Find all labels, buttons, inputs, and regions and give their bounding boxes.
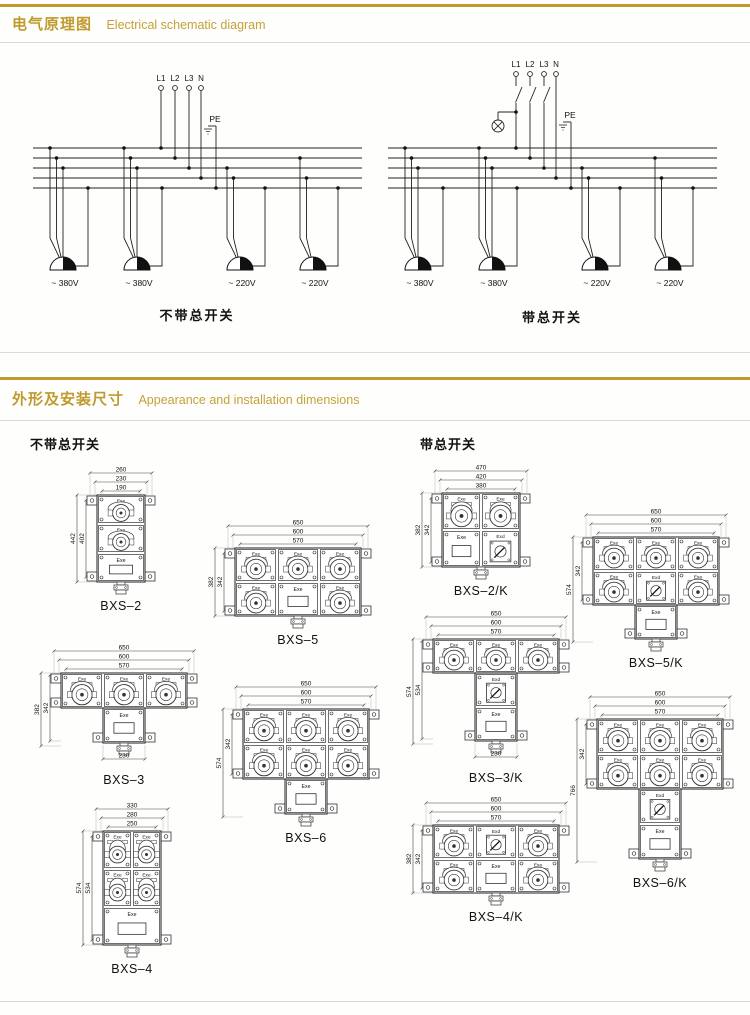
model-label: BXS–3/K (469, 771, 523, 785)
module-marking: Exe (142, 835, 151, 841)
module-marking: Exe (120, 713, 129, 719)
schematic-without-main-switch: L1L2L3NPE~ 380V~ 380V~ 220V~ 220V不带总开关 (25, 70, 370, 326)
dimension-value: 402 (79, 533, 86, 544)
dimension-value: 342 (579, 748, 586, 759)
dimension-value: 534 (85, 882, 92, 893)
unit-drawing-bxs6k: 650600570766342ExeExeExeExeExeExeExdExeB… (560, 684, 738, 890)
dimension-value: 570 (491, 629, 502, 636)
module-marking: Exe (113, 873, 122, 879)
module-marking: Exd (496, 534, 505, 540)
dimension-value: 650 (119, 645, 130, 652)
unit-drawing-bxs5k: 650600570574342ExeExeExeExeExdExeExeBXS–… (556, 502, 734, 670)
terminal-circle (159, 86, 164, 91)
unit-drawing-bxs-6: 650600570574342ExeExeExeExeExeExeExeBXS–… (206, 674, 384, 850)
unit-drawing-bxs2k: 470420380382342ExeExeExeExdBXS–2/K (405, 458, 535, 598)
dimension-value: 570 (301, 699, 312, 706)
unit-drawing-bxs4k: 650600570382342ExeExdExeExeExeExeBXS–4/K (396, 790, 574, 924)
module-marking: Exe (117, 558, 126, 564)
dimension-value: 342 (225, 738, 232, 749)
model-label: BXS–6 (285, 831, 326, 845)
socket-symbol (582, 257, 608, 270)
svg-text:N: N (198, 74, 204, 83)
dimension-value: 382 (415, 524, 422, 535)
outlet-voltage-label: ~ 220V (301, 278, 329, 288)
svg-text:L2: L2 (171, 74, 180, 83)
outlet-voltage-label: ~ 380V (480, 278, 508, 288)
dimension-value: 342 (43, 702, 50, 713)
module-marking: Exe (492, 864, 501, 870)
dimension-value: 600 (651, 518, 662, 525)
dimension-value: 382 (406, 853, 413, 864)
dimension-value: 382 (208, 576, 215, 587)
socket-symbol (479, 257, 505, 270)
divider-between-sections (0, 352, 750, 353)
gold-rule-dimensions (0, 377, 750, 380)
svg-text:L1: L1 (512, 60, 521, 69)
dimension-value: 600 (293, 529, 304, 536)
socket-symbol (655, 257, 681, 270)
module-marking: Exe (457, 535, 466, 541)
dimension-value: 342 (415, 853, 422, 864)
dimension-value: 650 (293, 520, 304, 527)
section-header-dimensions: 外形及安装尺寸 Appearance and installation dime… (12, 388, 359, 409)
model-label: BXS–2/K (454, 584, 508, 598)
model-label: BXS–4 (111, 962, 152, 976)
unit-drawing-bxs-4k: 650600570382342ExeExdExeExeExeExeBXS–4/K (396, 790, 574, 929)
terminal-circle (199, 86, 204, 91)
dimension-value: 574 (406, 686, 413, 697)
dimension-value: 230 (119, 753, 130, 760)
module-marking: Exd (656, 793, 665, 799)
schematic-with-main-switch: L1L2L3NPE~ 380V~ 380V~ 220V~ 220V带总开关 (380, 56, 725, 328)
schematic-diagram-without-main-switch: L1L2L3NPE~ 380V~ 380V~ 220V~ 220V不带总开关 (25, 70, 370, 331)
dimension-value: 570 (651, 527, 662, 534)
module-marking: Exd (652, 575, 661, 581)
terminal-circle (173, 86, 178, 91)
terminal-circle (514, 72, 519, 77)
socket-symbol (405, 257, 431, 270)
dimension-value: 570 (655, 709, 666, 716)
section-header-schematic: 电气原理图 Electrical schematic diagram (12, 13, 266, 34)
module-marking: Exe (656, 829, 665, 835)
unit-drawing-bxs-2k: 470420380382342ExeExeExeExdBXS–2/K (405, 458, 535, 603)
dimension-value: 600 (119, 654, 130, 661)
socket-symbol (124, 257, 150, 270)
unit-drawing-bxs5: 650600570382342ExeExeExeExeExeExeBXS–5 (198, 513, 376, 647)
dimension-value: 260 (116, 467, 127, 474)
page-bottom-rule (0, 1001, 750, 1002)
svg-text:L3: L3 (540, 60, 549, 69)
column-header-with-main-switch: 带总开关 (420, 434, 476, 453)
dimension-value: 380 (476, 483, 487, 490)
dimension-value: 342 (575, 565, 582, 576)
dimension-value: 420 (476, 474, 487, 481)
schematic-title-zh: 电气原理图 (12, 16, 92, 33)
dimension-value: 230 (116, 476, 127, 483)
model-label: BXS–2 (100, 599, 141, 613)
pe-label: PE (209, 114, 221, 124)
dimension-value: 650 (301, 681, 312, 688)
outlet-voltage-label: ~ 220V (228, 278, 256, 288)
dimension-value: 382 (34, 704, 41, 715)
model-label: BXS–4/K (469, 910, 523, 924)
module-marking: Exd (492, 677, 501, 683)
module-marking: Exe (492, 712, 501, 718)
pe-label: PE (564, 110, 576, 120)
unit-drawing-bxs-3k: 650600570574534ExeExeExeExdExe230BXS–3/K (396, 604, 574, 790)
unit-drawing-bxs6: 650600570574342ExeExeExeExeExeExeExeBXS–… (206, 674, 384, 845)
unit-drawing-bxs3: 650600570382342ExeExeExeExe230BXS–3 (24, 638, 202, 787)
dimension-value: 574 (216, 757, 223, 768)
outlet-voltage-label: ~ 220V (656, 278, 684, 288)
dimension-value: 250 (127, 821, 138, 828)
dimension-value: 470 (476, 465, 487, 472)
dimension-value: 574 (76, 882, 83, 893)
outlet-voltage-label: ~ 380V (406, 278, 434, 288)
dimension-value: 570 (293, 538, 304, 545)
terminal-circle (554, 72, 559, 77)
socket-symbol (300, 257, 326, 270)
divider-under-dimensions-header (0, 420, 750, 421)
model-label: BXS–5/K (629, 656, 683, 670)
socket-symbol (50, 257, 76, 270)
socket-symbol (227, 257, 253, 270)
unit-drawing-bxs-6k: 650600570766342ExeExeExeExeExeExeExdExeB… (560, 684, 738, 895)
model-label: BXS–3 (103, 773, 144, 787)
unit-drawing-bxs-4: 330280250574534ExeExeExeExeExeBXS–4 (66, 796, 176, 981)
dimension-value: 600 (301, 690, 312, 697)
outlet-voltage-label: ~ 380V (125, 278, 153, 288)
dimension-value: 230 (491, 751, 502, 758)
outlet-voltage-label: ~ 220V (583, 278, 611, 288)
unit-drawing-bxs-2: 260230190442402ExeExeExeBXS–2 (60, 460, 160, 618)
dimension-value: 570 (491, 815, 502, 822)
dimensions-title-en: Appearance and installation dimensions (138, 393, 359, 407)
module-marking: Exd (492, 829, 501, 835)
model-label: BXS–5 (277, 633, 318, 647)
dimension-value: 650 (655, 691, 666, 698)
dimension-value: 442 (70, 533, 77, 544)
schematic-diagram-with-main-switch: L1L2L3NPE~ 380V~ 380V~ 220V~ 220V带总开关 (380, 56, 725, 333)
terminal-circle (542, 72, 547, 77)
svg-text:N: N (553, 60, 559, 69)
module-marking: Exe (294, 587, 303, 593)
dimension-value: 190 (116, 485, 127, 492)
dimension-value: 650 (491, 611, 502, 618)
dimension-value: 650 (651, 509, 662, 516)
dimensions-title-zh: 外形及安装尺寸 (12, 391, 124, 408)
schematic-title-en: Electrical schematic diagram (106, 18, 265, 32)
unit-drawing-bxs-5k: 650600570574342ExeExeExeExeExdExeExeBXS–… (556, 502, 734, 675)
unit-drawing-bxs2: 260230190442402ExeExeExeBXS–2 (60, 460, 160, 613)
gold-rule-top (0, 4, 750, 7)
terminal-circle (528, 72, 533, 77)
outlet-voltage-label: ~ 380V (51, 278, 79, 288)
terminal-circle (187, 86, 192, 91)
dimension-value: 342 (424, 524, 431, 535)
dimension-value: 600 (491, 806, 502, 813)
dimension-value: 650 (491, 797, 502, 804)
module-marking: Exe (142, 873, 151, 879)
module-marking: Exe (113, 835, 122, 841)
diagram-caption: 不带总开关 (159, 308, 234, 323)
unit-drawing-bxs-3: 650600570382342ExeExeExeExe230BXS–3 (24, 638, 202, 792)
svg-text:L3: L3 (185, 74, 194, 83)
diagram-caption: 带总开关 (522, 310, 582, 325)
module-marking: Exe (652, 610, 661, 616)
dimension-value: 574 (566, 584, 573, 595)
svg-text:L1: L1 (157, 74, 166, 83)
column-header-without-main-switch: 不带总开关 (30, 434, 100, 453)
dimension-value: 342 (217, 576, 224, 587)
dimension-value: 600 (655, 700, 666, 707)
dimension-value: 534 (415, 684, 422, 695)
unit-drawing-bxs3k: 650600570574534ExeExeExeExdExe230BXS–3/K (396, 604, 574, 785)
dimension-value: 570 (119, 663, 130, 670)
unit-drawing-bxs4: 330280250574534ExeExeExeExeExeBXS–4 (66, 796, 176, 976)
indicator-lamp-symbol (492, 110, 518, 132)
dimension-value: 280 (127, 812, 138, 819)
module-marking: Exe (128, 912, 137, 918)
dimension-value: 600 (491, 620, 502, 627)
model-label: BXS–6/K (633, 876, 687, 890)
unit-drawing-bxs-5: 650600570382342ExeExeExeExeExeExeBXS–5 (198, 513, 376, 652)
divider-under-schematic-header (0, 42, 750, 43)
svg-text:L2: L2 (526, 60, 535, 69)
module-marking: Exe (302, 784, 311, 790)
dimension-value: 330 (127, 803, 138, 810)
